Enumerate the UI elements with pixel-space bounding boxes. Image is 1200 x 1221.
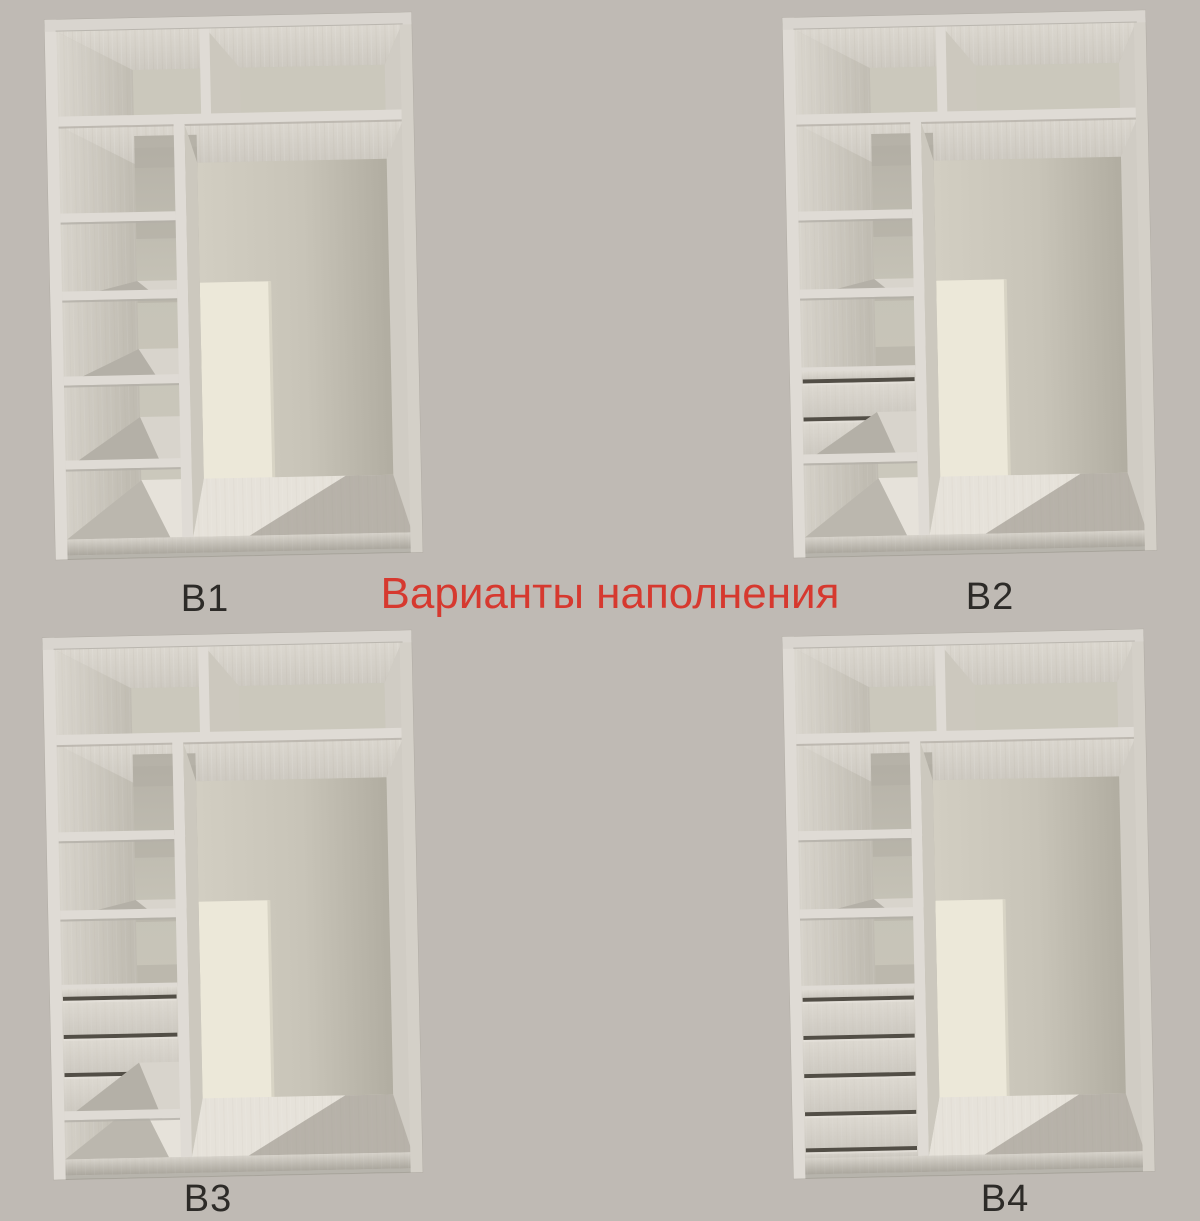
wardrobe-variant-v3	[40, 624, 425, 1184]
variant-label-v4: В4	[925, 1178, 1085, 1220]
wardrobe-render-v1	[42, 6, 425, 564]
wardrobe-variant-v1	[42, 6, 425, 564]
wardrobe-variant-v2	[780, 4, 1159, 562]
catalog-image: Варианты наполнения В1 В2 В3 В4	[0, 0, 1200, 1221]
variant-label-v3: В3	[128, 1178, 288, 1220]
variant-label-v2: В2	[910, 576, 1070, 618]
wardrobe-render-v3	[40, 624, 425, 1184]
wardrobe-variant-v4	[780, 623, 1157, 1183]
wardrobe-render-v2	[780, 4, 1159, 562]
wardrobe-render-v4	[780, 623, 1157, 1183]
variant-label-v1: В1	[125, 578, 285, 620]
page-title: Варианты наполнения	[290, 570, 930, 618]
